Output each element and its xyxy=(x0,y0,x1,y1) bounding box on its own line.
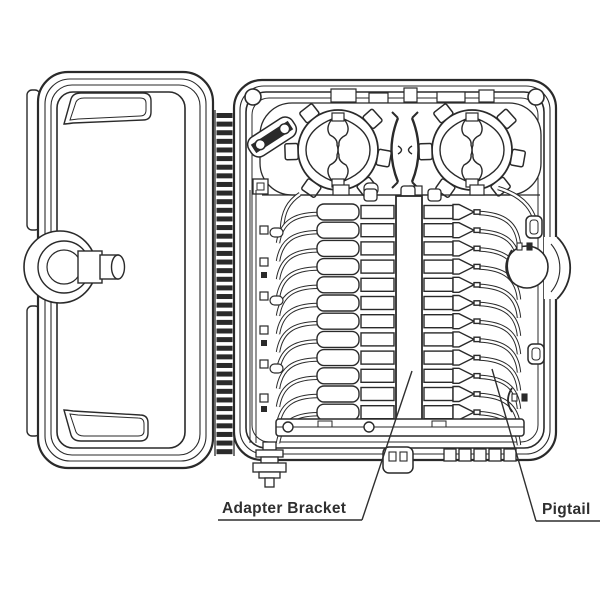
rail-stud xyxy=(261,272,267,278)
adapter-bracket-label: Adapter Bracket xyxy=(222,500,346,517)
adapter-body xyxy=(317,259,359,275)
hinge-rung xyxy=(217,225,233,230)
pigtail-ferrule-tip xyxy=(474,319,480,323)
adapter-body xyxy=(317,222,359,238)
hinge-rung xyxy=(217,311,233,316)
adapter-body xyxy=(317,350,359,366)
vent-tab xyxy=(444,449,456,461)
vent-tab xyxy=(504,449,516,461)
adapter-mid xyxy=(361,224,394,237)
adapter-body xyxy=(317,368,359,384)
hinge-rung xyxy=(217,285,233,290)
hinge-rung xyxy=(217,165,233,170)
pigtail-ferrule-tip xyxy=(474,374,480,378)
hinge-rung xyxy=(217,406,233,411)
hinge-rung xyxy=(217,337,233,342)
hinge-rungs xyxy=(217,113,233,454)
rail-stud xyxy=(261,406,267,412)
rail-clip xyxy=(260,292,268,300)
adapter-body xyxy=(317,277,359,293)
adapter-body xyxy=(317,295,359,311)
screw-hole-top-right xyxy=(528,89,544,105)
hinge-rung xyxy=(217,251,233,256)
hinge-rung xyxy=(217,156,233,161)
hinge-rung xyxy=(217,268,233,273)
fiber-guide-loop xyxy=(270,364,283,373)
adapter-right xyxy=(424,388,453,401)
splice-tray xyxy=(244,103,541,198)
adapter-mid xyxy=(361,242,394,255)
top-tab xyxy=(404,88,417,102)
adapter-mid xyxy=(361,406,394,419)
wall-clip-slot xyxy=(530,220,538,234)
hinge-rung xyxy=(217,191,233,196)
drawing-svg: Adapter Bracket Pigtail xyxy=(0,0,600,600)
hinge-rung xyxy=(217,441,233,446)
hinge-rung xyxy=(217,346,233,351)
hinge-rung xyxy=(217,139,233,144)
pigtail-ferrule-tip xyxy=(474,410,480,414)
screw-hole-top-left xyxy=(245,89,261,105)
hinge-rung xyxy=(217,389,233,394)
hinge-rung xyxy=(217,208,233,213)
tray-tab xyxy=(333,185,349,195)
wall-stud xyxy=(527,243,532,250)
mounting-foot-slot xyxy=(400,452,407,461)
adapter-right xyxy=(424,406,453,419)
top-tab xyxy=(369,93,388,103)
bottom-vent-tabs xyxy=(444,449,516,461)
door-panel xyxy=(24,72,213,468)
wall-clip-slot xyxy=(532,348,540,360)
adapter-right xyxy=(424,351,453,364)
door-grip-bottom-inner xyxy=(70,414,144,436)
adapter-bracket-bar xyxy=(396,196,422,420)
technical-drawing-fiber-distribution-box: Adapter Bracket Pigtail xyxy=(0,0,600,600)
wall-stud xyxy=(512,394,517,401)
adapter-mid xyxy=(361,351,394,364)
fiber-guide-loop xyxy=(270,228,283,237)
adapter-mid xyxy=(361,260,394,273)
vent-tab xyxy=(459,449,471,461)
door-grip-top-inner xyxy=(70,98,146,120)
adapter-right xyxy=(424,333,453,346)
mounting-foot-slot xyxy=(389,452,396,461)
adapter-right xyxy=(424,206,453,219)
adapter-mid xyxy=(361,315,394,328)
adapter-body xyxy=(317,204,359,220)
pigtail-label: Pigtail xyxy=(542,501,591,518)
hinge-rung xyxy=(217,303,233,308)
pigtail-ferrule-tip xyxy=(474,337,480,341)
tray-tab xyxy=(470,185,484,195)
hinge-rung xyxy=(217,294,233,299)
rail-clip xyxy=(260,394,268,402)
vent-tab xyxy=(474,449,486,461)
hinge-rung xyxy=(217,199,233,204)
hinge-rung xyxy=(217,363,233,368)
pigtail-ferrule-tip xyxy=(474,392,480,396)
hinge-rung xyxy=(217,182,233,187)
hinge-rung xyxy=(217,320,233,325)
pigtail-ferrule-tip xyxy=(474,355,480,359)
adapter-body xyxy=(317,331,359,347)
hinge-rung xyxy=(217,113,233,118)
pigtail-ferrule-tip xyxy=(474,264,480,268)
adapter-right xyxy=(424,260,453,273)
base-slot xyxy=(318,421,332,427)
hinge-rung xyxy=(217,130,233,135)
hinge-rung xyxy=(217,242,233,247)
adapter-mid xyxy=(361,369,394,382)
adapter-body xyxy=(317,313,359,329)
adapter-right xyxy=(424,224,453,237)
adapter-mid xyxy=(361,333,394,346)
hinge-rung xyxy=(217,354,233,359)
hinge-rung xyxy=(217,147,233,152)
wall-stud xyxy=(517,243,522,250)
hinge-rung xyxy=(217,380,233,385)
hinge-rung xyxy=(217,216,233,221)
hinge-rung xyxy=(217,372,233,377)
base-screw xyxy=(283,422,293,432)
adapter-right xyxy=(424,369,453,382)
adapter-right xyxy=(424,242,453,255)
wall-stud xyxy=(522,394,527,401)
hinge-rung xyxy=(217,173,233,178)
adapter-right xyxy=(424,315,453,328)
adapter-body xyxy=(317,386,359,402)
hinge-rung xyxy=(217,122,233,127)
rail-clip xyxy=(260,326,268,334)
pigtail-ferrule-tip xyxy=(474,301,480,305)
hinge-rung xyxy=(217,260,233,265)
adapter-right xyxy=(424,297,453,310)
bracket-foot xyxy=(364,189,377,201)
adapter-mid xyxy=(361,388,394,401)
rail-stud xyxy=(261,340,267,346)
rail-clip xyxy=(260,258,268,266)
fiber-guide-loop xyxy=(270,296,283,305)
adapter-mid xyxy=(361,278,394,291)
adapter-body xyxy=(317,404,359,420)
top-tab xyxy=(331,89,356,102)
base-slot xyxy=(432,421,446,427)
adapter-body xyxy=(317,240,359,256)
top-tab xyxy=(479,90,494,102)
pigtail-ferrule-tip xyxy=(474,228,480,232)
pigtail-ferrule-tip xyxy=(474,210,480,214)
pigtail-ferrule-tip xyxy=(474,246,480,250)
hinge-rung xyxy=(217,423,233,428)
rail-clip xyxy=(260,226,268,234)
hinge-rung xyxy=(217,397,233,402)
hinge-rung xyxy=(217,449,233,454)
hinge-rung xyxy=(217,329,233,334)
mounting-foot xyxy=(383,447,413,473)
adapter-mid xyxy=(361,206,394,219)
hinge-strip xyxy=(215,110,234,456)
adapter-right xyxy=(424,278,453,291)
top-tab xyxy=(437,92,465,102)
rail-clip xyxy=(260,360,268,368)
pigtail-ferrule-tip xyxy=(474,283,480,287)
hinge-rung xyxy=(217,415,233,420)
bracket-foot xyxy=(428,189,441,201)
hinge-rung xyxy=(217,432,233,437)
vent-tab xyxy=(489,449,501,461)
adapter-mid xyxy=(361,297,394,310)
hinge-rung xyxy=(217,277,233,282)
bracket-base-bar xyxy=(276,419,524,436)
base-screw xyxy=(364,422,374,432)
hinge-rung xyxy=(217,234,233,239)
corner-bracket-slot xyxy=(257,183,264,190)
